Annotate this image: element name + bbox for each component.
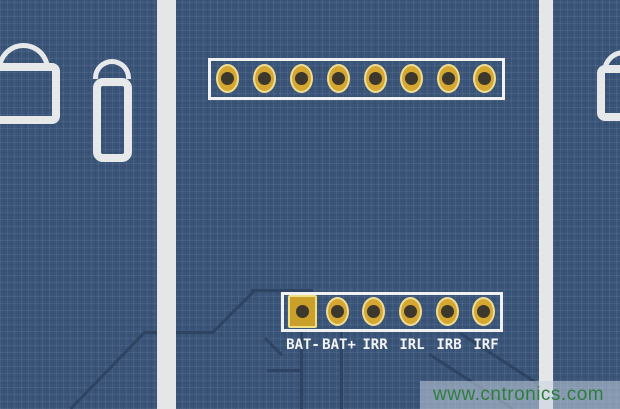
drill-hole	[478, 72, 491, 85]
top-connector-pad	[437, 64, 460, 93]
drill-hole	[441, 305, 454, 318]
silkscreen-capacitor-body-outline	[93, 78, 132, 162]
pin-label-irl: IRL	[399, 337, 424, 353]
watermark-text: www.cntronics.com	[433, 384, 604, 406]
bottom-connector-pad-irb	[436, 297, 459, 326]
panel-separator-strip-left	[157, 0, 176, 409]
pin-label-irf: IRF	[473, 337, 498, 353]
silkscreen-capacitor-dome-outline	[93, 59, 131, 79]
top-connector-pad	[290, 64, 313, 93]
copper-trace	[70, 331, 146, 409]
pin-label-irb: IRB	[436, 337, 461, 353]
pin-label-bat-minus: BAT-	[286, 337, 320, 353]
copper-trace	[144, 331, 214, 334]
drill-hole	[332, 72, 345, 85]
panel-separator-strip-right	[539, 0, 553, 409]
pcb-board-render: BAT- BAT+ IRR IRL IRB IRF www.cntronics.…	[0, 0, 620, 409]
bottom-connector-pad-irf	[472, 297, 495, 326]
top-connector-pad	[216, 64, 239, 93]
bottom-connector-pad-bat-minus	[288, 295, 317, 328]
bottom-connector-pad-irr	[362, 297, 385, 326]
drill-hole	[477, 305, 490, 318]
copper-trace	[459, 332, 539, 386]
bottom-connector-pad-bat-plus	[326, 297, 349, 326]
top-connector-pad	[327, 64, 350, 93]
drill-hole	[405, 72, 418, 85]
top-connector-pad	[473, 64, 496, 93]
silkscreen-body-outline-right	[597, 65, 620, 121]
pin-label-bat-plus: BAT+	[322, 337, 356, 353]
drill-hole	[369, 72, 382, 85]
silkscreen-body-outline-left	[0, 63, 60, 124]
top-connector-pad	[364, 64, 387, 93]
watermark-banner: www.cntronics.com	[420, 381, 620, 409]
copper-trace	[211, 290, 256, 335]
drill-hole	[404, 305, 417, 318]
top-connector-pad	[400, 64, 423, 93]
drill-hole	[295, 72, 308, 85]
drill-hole	[296, 305, 309, 318]
bottom-connector-pad-irl	[399, 297, 422, 326]
drill-hole	[331, 305, 344, 318]
pin-label-irr: IRR	[362, 337, 387, 353]
drill-hole	[442, 72, 455, 85]
drill-hole	[221, 72, 234, 85]
copper-trace	[264, 337, 283, 356]
drill-hole	[258, 72, 271, 85]
drill-hole	[367, 305, 380, 318]
top-connector-pad	[253, 64, 276, 93]
copper-trace	[267, 369, 303, 372]
